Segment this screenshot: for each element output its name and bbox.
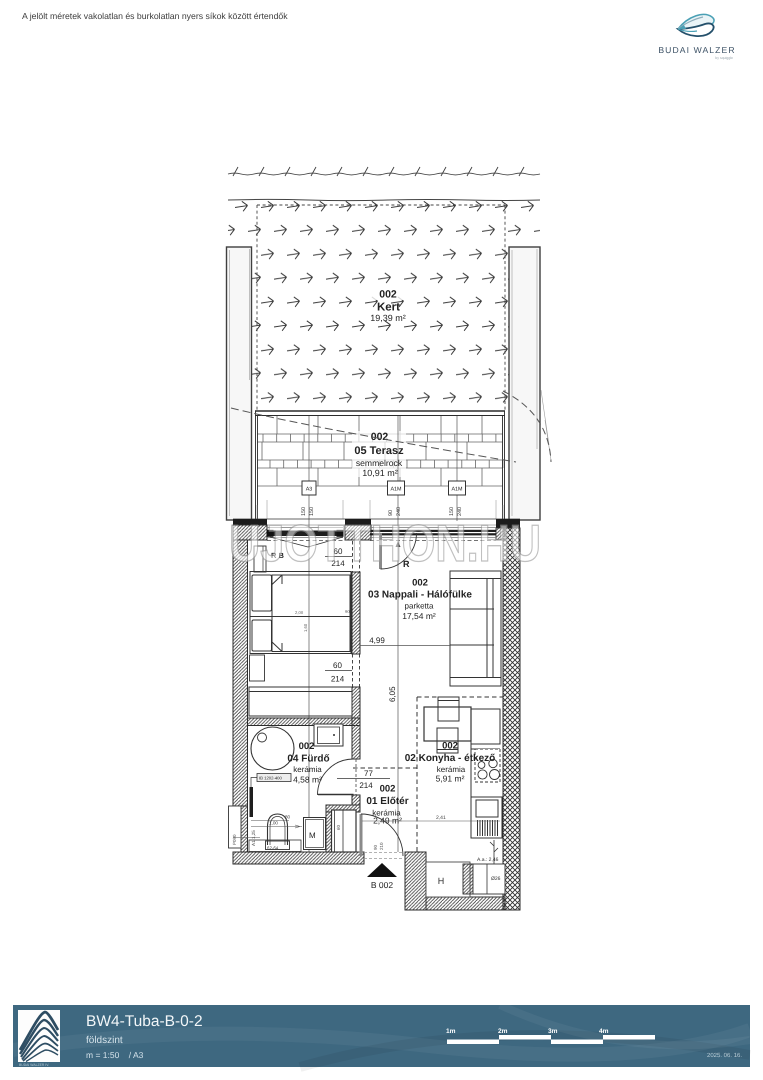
- svg-text:2,41: 2,41: [436, 815, 446, 821]
- svg-text:A.a.: 2,46: A.a.: 2,46: [477, 857, 499, 863]
- svg-text:17,54 m²: 17,54 m²: [402, 611, 436, 621]
- svg-text:kerámia: kerámia: [293, 765, 322, 774]
- svg-text:002: 002: [412, 578, 428, 589]
- svg-text:A1M: A1M: [451, 487, 463, 493]
- svg-text:UJOTTHON.HU: UJOTTHON.HU: [229, 515, 541, 573]
- svg-text:H: H: [438, 876, 445, 886]
- svg-text:04 Fürdő: 04 Fürdő: [287, 754, 329, 765]
- svg-text:002: 002: [299, 741, 315, 752]
- svg-text:6,05: 6,05: [388, 686, 397, 702]
- svg-text:80: 80: [285, 815, 291, 820]
- svg-text:4m: 4m: [599, 1028, 609, 1035]
- svg-text:2025. 06. 16.: 2025. 06. 16.: [707, 1052, 742, 1059]
- svg-text:A1M: A1M: [390, 487, 402, 493]
- svg-text:77: 77: [364, 769, 373, 778]
- svg-text:A3: A3: [306, 487, 313, 493]
- svg-text:002: 002: [442, 741, 458, 752]
- svg-text:by squiggle: by squiggle: [715, 56, 733, 60]
- svg-text:m = 1:50 / A3: m = 1:50 / A3: [86, 1050, 144, 1060]
- svg-text:214: 214: [359, 781, 373, 790]
- svg-text:4,99: 4,99: [369, 636, 385, 645]
- svg-text:002: 002: [380, 784, 396, 795]
- svg-text:BW4-Tuba-B-0-2: BW4-Tuba-B-0-2: [86, 1013, 203, 1030]
- svg-text:Ø26: Ø26: [491, 876, 501, 882]
- svg-text:1,00: 1,00: [269, 821, 278, 826]
- svg-text:2,49 m²: 2,49 m²: [373, 816, 402, 826]
- svg-text:5,91 m²: 5,91 m²: [436, 774, 465, 784]
- svg-text:01 Előtér: 01 Előtér: [366, 796, 408, 807]
- svg-text:BUDAI WALZER: BUDAI WALZER: [658, 45, 735, 55]
- svg-text:10,91 m²: 10,91 m²: [362, 468, 398, 478]
- svg-text:2,00: 2,00: [295, 610, 304, 615]
- svg-text:60: 60: [336, 824, 341, 830]
- svg-text:parketta: parketta: [405, 602, 434, 611]
- svg-text:19,39 m²: 19,39 m²: [370, 313, 406, 323]
- svg-text:semmelrock: semmelrock: [356, 458, 403, 468]
- svg-text:03 Nappali - Hálófülke: 03 Nappali - Hálófülke: [368, 590, 472, 601]
- svg-text:214: 214: [331, 675, 345, 684]
- svg-text:05 Terasz: 05 Terasz: [354, 445, 404, 457]
- svg-text:P090: P090: [232, 834, 237, 845]
- svg-text:002: 002: [379, 289, 397, 301]
- svg-text:IB 1202-400: IB 1202-400: [259, 776, 282, 781]
- svg-text:60: 60: [333, 661, 342, 670]
- svg-text:BUDAI WALZER IV.: BUDAI WALZER IV.: [19, 1063, 49, 1067]
- svg-text:A1 1,25: A1 1,25: [251, 830, 256, 846]
- svg-text:A jelölt méretek vakolatlan és: A jelölt méretek vakolatlan és burkolatl…: [22, 11, 288, 21]
- svg-text:Kert: Kert: [377, 302, 400, 314]
- svg-text:02 Konyha - étkező: 02 Konyha - étkező: [405, 753, 496, 764]
- svg-text:földszint: földszint: [86, 1035, 123, 1046]
- svg-text:B 002: B 002: [371, 880, 393, 890]
- svg-text:1,60: 1,60: [303, 623, 308, 632]
- svg-text:210: 210: [379, 842, 384, 850]
- svg-text:2m: 2m: [498, 1028, 508, 1035]
- svg-text:90: 90: [345, 609, 350, 614]
- svg-text:62-64: 62-64: [267, 846, 279, 851]
- svg-text:90: 90: [373, 844, 378, 850]
- svg-text:1m: 1m: [446, 1028, 456, 1035]
- svg-text:3m: 3m: [548, 1028, 558, 1035]
- svg-text:M: M: [309, 831, 316, 840]
- svg-text:4,58 m²: 4,58 m²: [293, 775, 322, 785]
